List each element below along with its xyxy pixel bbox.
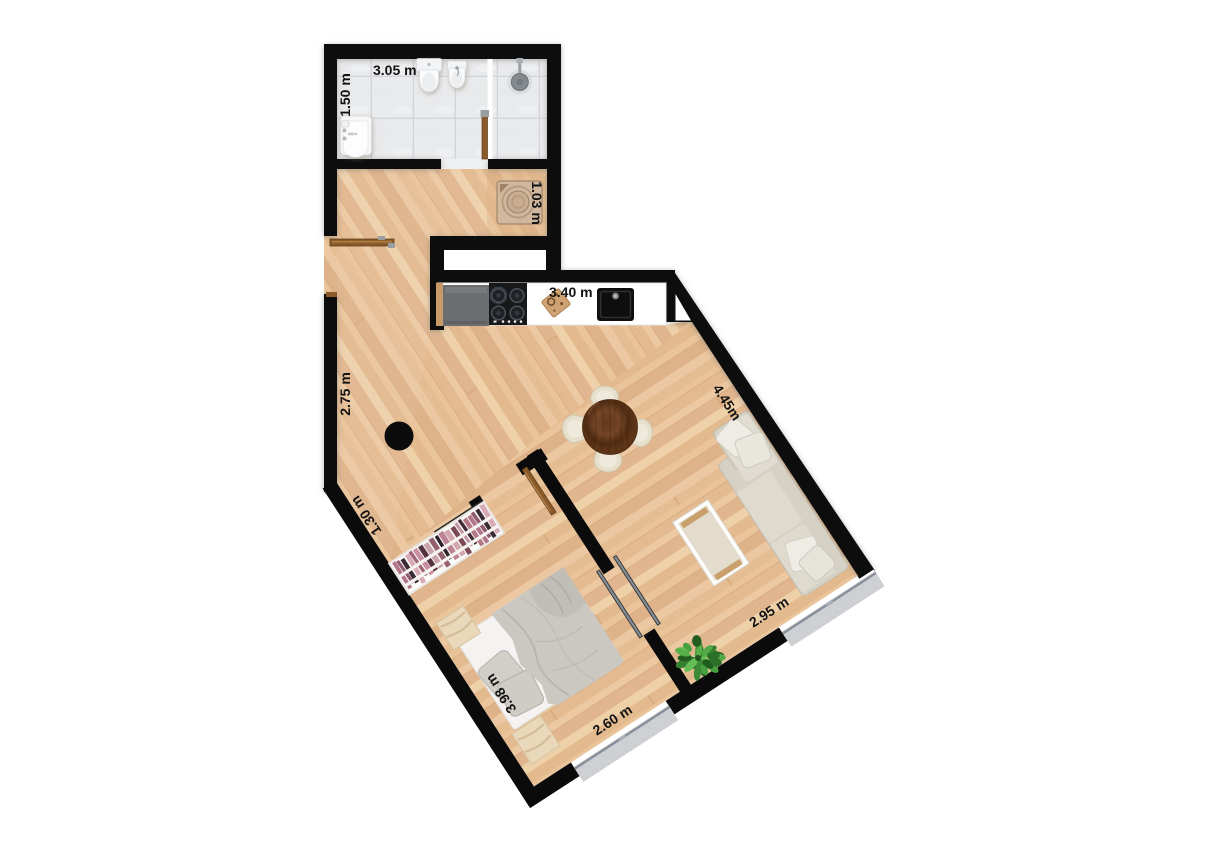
svg-text:3.40 m: 3.40 m (549, 284, 593, 300)
svg-text:3.05 m: 3.05 m (373, 62, 417, 78)
svg-text:1.50 m: 1.50 m (337, 73, 353, 117)
svg-text:2.75 m: 2.75 m (337, 372, 353, 416)
svg-text:1.03 m: 1.03 m (529, 181, 545, 225)
